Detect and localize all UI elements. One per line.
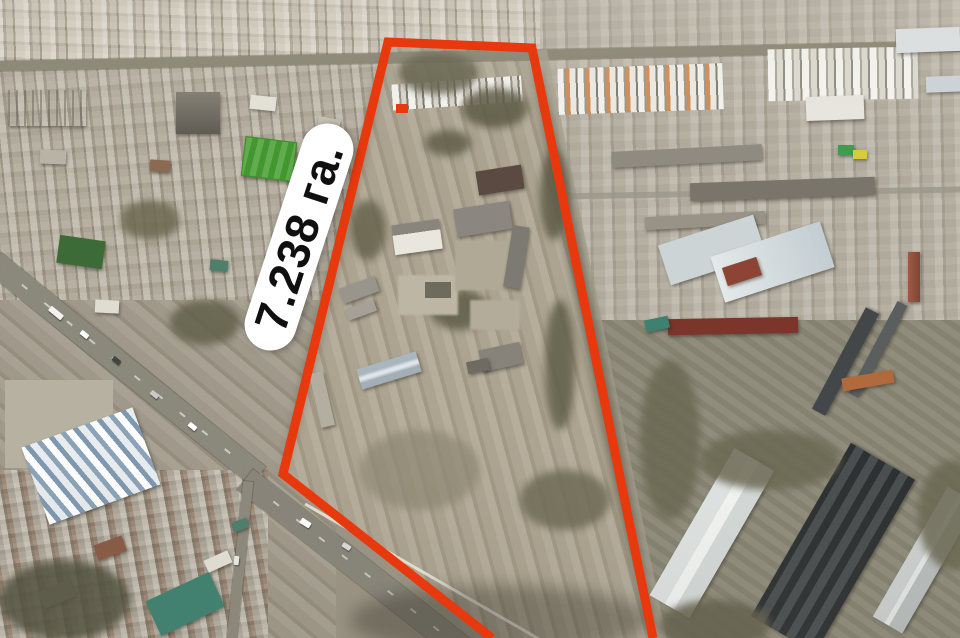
- tree-cluster: [0, 560, 130, 638]
- car: [234, 556, 240, 565]
- truck-lot: [557, 63, 724, 115]
- tree-cluster: [398, 52, 478, 94]
- red-marker-square: [396, 104, 408, 113]
- ruins-pale-patch: [470, 300, 520, 330]
- aerial-photo: 7.238 га.: [0, 0, 960, 638]
- house-roof: [249, 95, 276, 112]
- tree-cluster: [540, 150, 568, 240]
- white-roof-far-top-right: [896, 27, 960, 53]
- truck-lot: [768, 47, 919, 102]
- apartment-block: [8, 90, 86, 126]
- tree-cluster: [425, 130, 471, 156]
- brick-chimney: [908, 252, 920, 302]
- tree-cluster: [462, 88, 528, 128]
- shipping-container-yellow: [853, 150, 867, 159]
- house-roof: [95, 299, 120, 313]
- apartment-tower-dark: [176, 92, 220, 134]
- maroon-roof-building: [668, 317, 798, 335]
- house-roof: [209, 259, 228, 272]
- house-roof: [150, 159, 171, 172]
- rubble-patch: [425, 282, 451, 298]
- white-roof-far-top-right: [926, 75, 960, 92]
- scrub-patch: [700, 430, 840, 490]
- football-field: [241, 136, 297, 182]
- scrub-patch: [640, 360, 700, 520]
- scrub-patch: [360, 430, 480, 510]
- tree-cluster: [350, 200, 386, 260]
- shipping-container-green: [838, 145, 854, 155]
- tree-cluster: [120, 200, 180, 240]
- scrub-patch: [520, 470, 610, 530]
- white-industrial-building: [806, 95, 865, 121]
- house-roof: [40, 150, 66, 165]
- tree-cluster: [170, 300, 240, 345]
- tree-cluster: [545, 300, 575, 430]
